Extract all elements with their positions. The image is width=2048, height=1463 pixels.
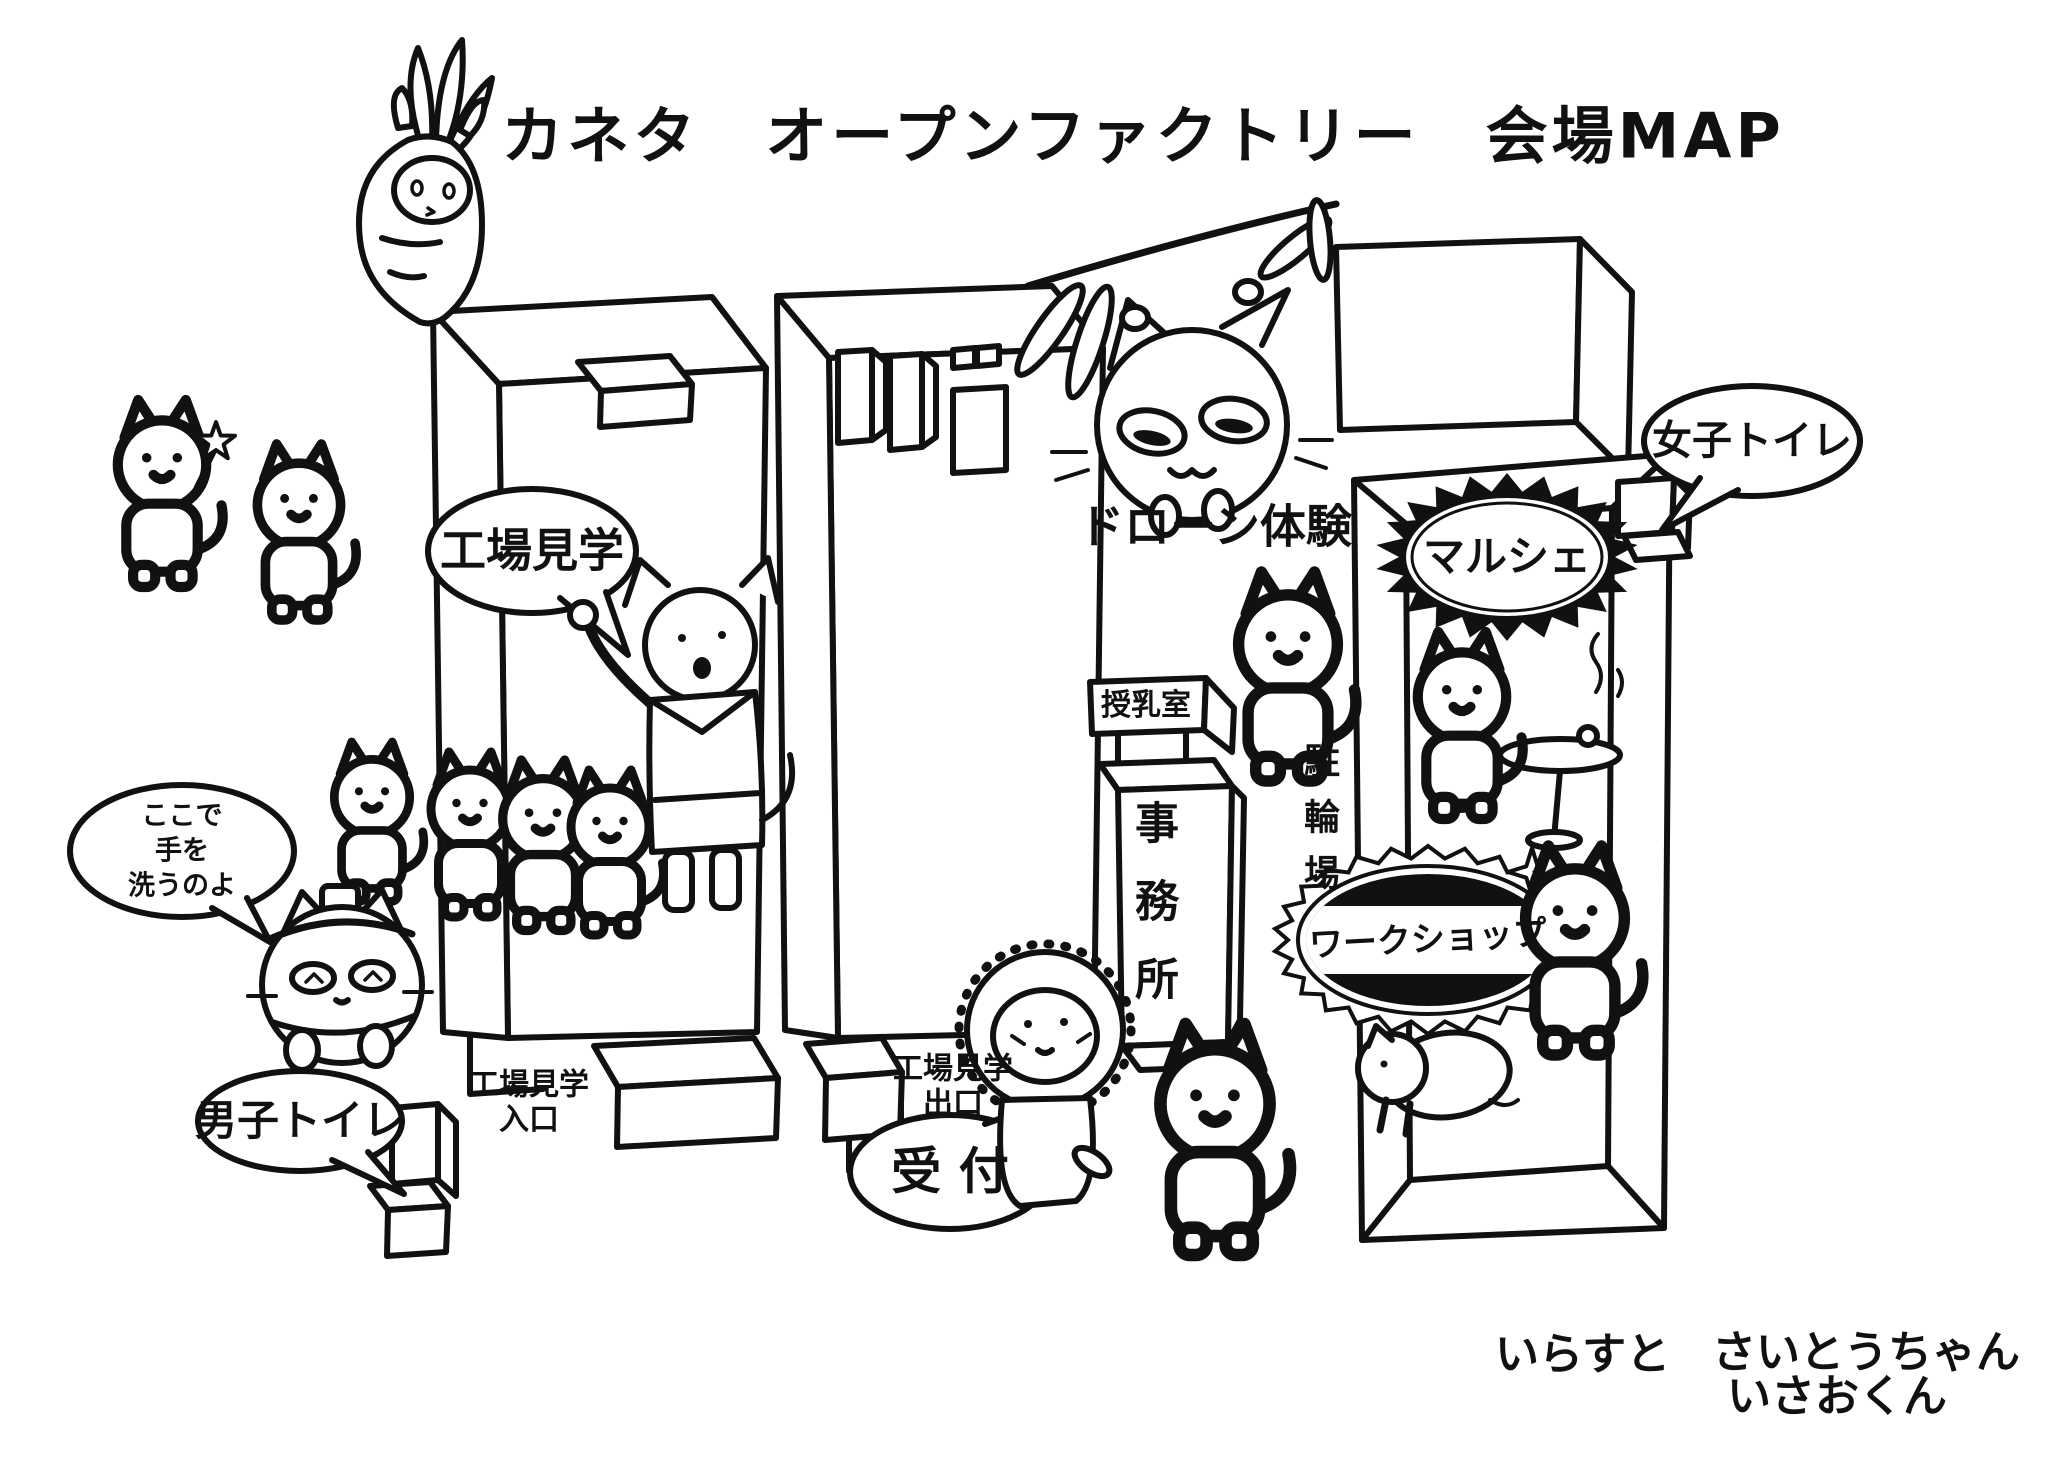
label-factory-tour-exit: 工場見学 出口	[893, 1053, 1013, 1122]
label-factory-tour-entrance: 工場見学 入口	[469, 1069, 589, 1138]
visitor-cat-with-wand	[118, 400, 223, 587]
label-bicycle-parking: 駐輪場	[1292, 742, 1344, 910]
wash-station-cat-mascot	[248, 886, 432, 1070]
label-mens-toilet: 男子トイレ	[195, 1097, 405, 1145]
paw	[1122, 307, 1148, 329]
upper-box	[1336, 239, 1580, 430]
paw	[1235, 281, 1261, 303]
ear	[460, 100, 484, 136]
wall-panel	[953, 387, 1006, 473]
ear	[394, 88, 412, 128]
dragonfly-wing-icon	[1307, 199, 1334, 280]
rim-block	[953, 348, 975, 368]
daikon-mascot	[359, 40, 492, 323]
page-title: カネタ オープンファクトリー 会場MAP	[501, 100, 1785, 171]
credits-artist-2: いさおくん	[1727, 1360, 1947, 1424]
label-reception: 受 付	[891, 1143, 1008, 1201]
happy-visitor-cat	[1160, 1024, 1290, 1255]
label-drone-experience: ドローン体験	[1078, 501, 1352, 554]
tour-visitor-cat	[334, 742, 424, 902]
cup	[1579, 727, 1597, 745]
label-marche: マルシェ	[1423, 533, 1591, 581]
label-factory-tour: 工場見学	[440, 525, 624, 578]
interior-wall	[838, 350, 872, 443]
label-nursing-room: 授乳室	[1101, 689, 1191, 724]
visitor-cat	[257, 444, 356, 620]
rim-block	[977, 346, 999, 366]
map-line-art	[0, 0, 2048, 1463]
label-womens-toilet: 女子トイレ	[1652, 418, 1852, 464]
label-wash-hands: ここで 手を 洗うのよ	[128, 798, 236, 903]
credits-label: いらすと	[1495, 1318, 1670, 1382]
interior-wall	[890, 354, 922, 450]
label-office: 事務所	[1120, 800, 1184, 1034]
venue-map: カネタ オープンファクトリー 会場MAP 工場見学 ドローン体験 女子トイレ 男…	[0, 0, 2048, 1463]
